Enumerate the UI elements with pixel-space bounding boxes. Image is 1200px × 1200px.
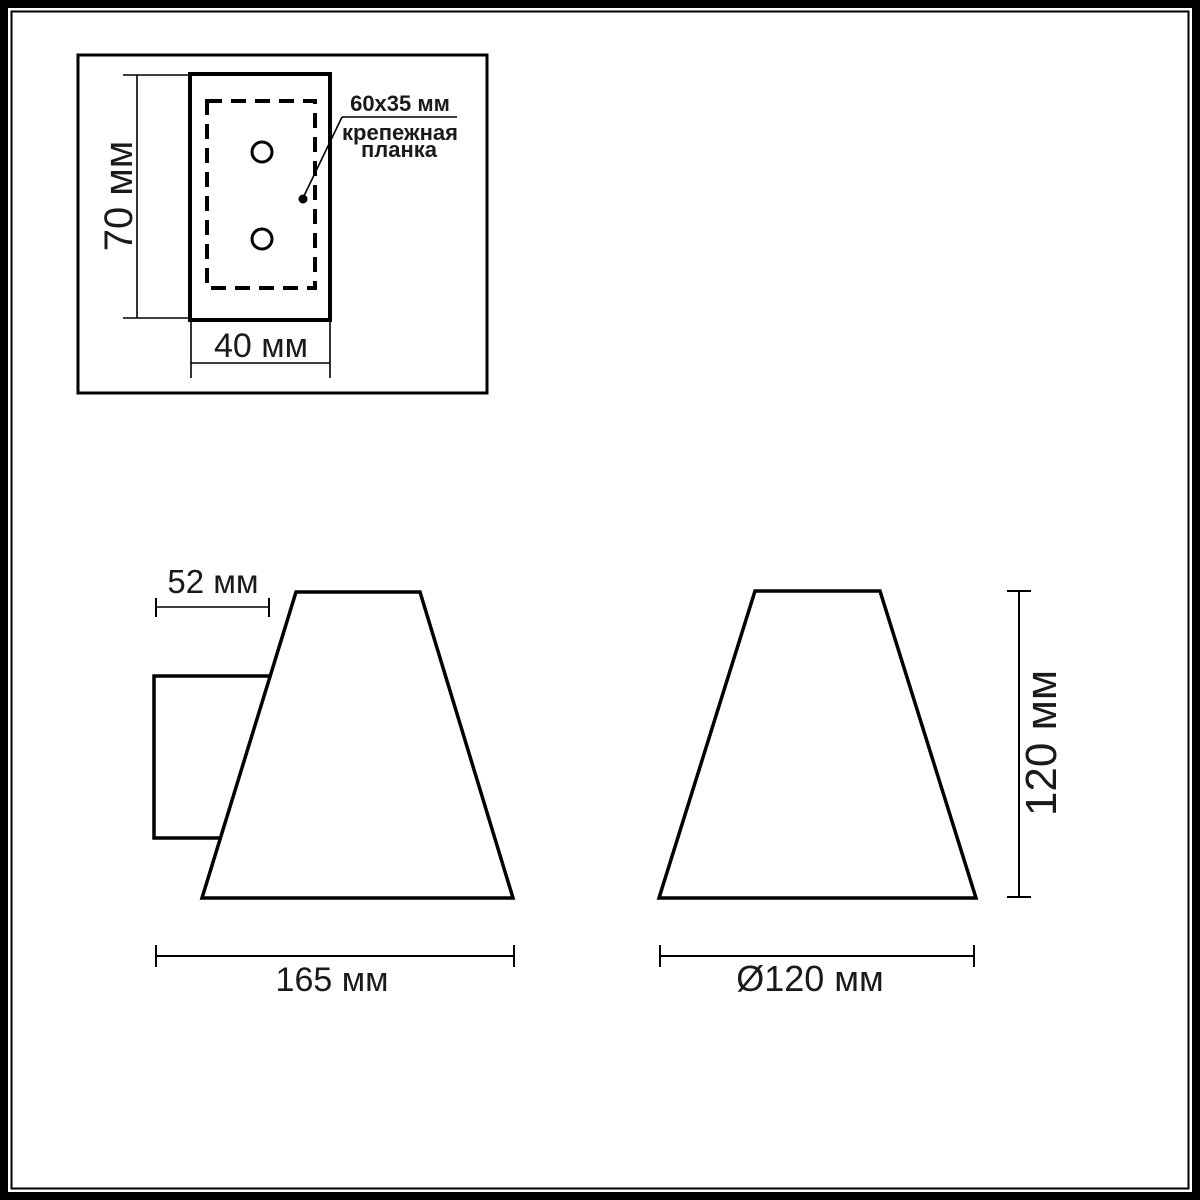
height-dimension-70: 70 мм <box>97 75 190 318</box>
technical-drawing-page: 70 мм 40 мм 60x35 мм крепежная планка <box>0 0 1200 1200</box>
callout-name-line2: планка <box>361 137 438 162</box>
dim-165-label: 165 мм <box>276 961 389 999</box>
lamp-side-view: 52 мм 165 мм <box>154 563 514 999</box>
shade-front-profile <box>659 591 976 898</box>
shade-side-profile <box>202 592 513 898</box>
screw-hole-bottom <box>252 229 272 249</box>
wall-lamp-dimension-drawing: 70 мм 40 мм 60x35 мм крепежная планка <box>0 0 1200 1200</box>
screw-hole-top <box>252 142 272 162</box>
height-dimension-120: 120 мм <box>1007 591 1066 897</box>
mounting-plate-outline <box>190 74 330 320</box>
dim-120d-label: Ø120 мм <box>736 958 884 999</box>
mounting-bracket-dashed-outline <box>207 101 315 288</box>
lamp-front-view: 120 мм Ø120 мм <box>659 591 1066 999</box>
depth-dimension-52: 52 мм <box>156 563 269 617</box>
dim-120h-label: 120 мм <box>1017 670 1066 816</box>
bracket-callout: 60x35 мм крепежная планка <box>299 91 458 204</box>
width-dimension-40: 40 мм <box>191 321 330 378</box>
mounting-plate-detail-view: 70 мм 40 мм 60x35 мм крепежная планка <box>78 55 487 393</box>
width-dimension-165: 165 мм <box>156 945 514 999</box>
callout-leader-dot <box>299 195 308 204</box>
dim-40-label: 40 мм <box>214 327 308 365</box>
outer-frame-border <box>4 4 1196 1196</box>
dim-52-label: 52 мм <box>167 563 258 600</box>
dim-70-label: 70 мм <box>97 141 141 252</box>
diameter-dimension-120: Ø120 мм <box>660 945 974 999</box>
callout-leader-slanted <box>303 117 342 198</box>
callout-size-label: 60x35 мм <box>350 91 450 116</box>
